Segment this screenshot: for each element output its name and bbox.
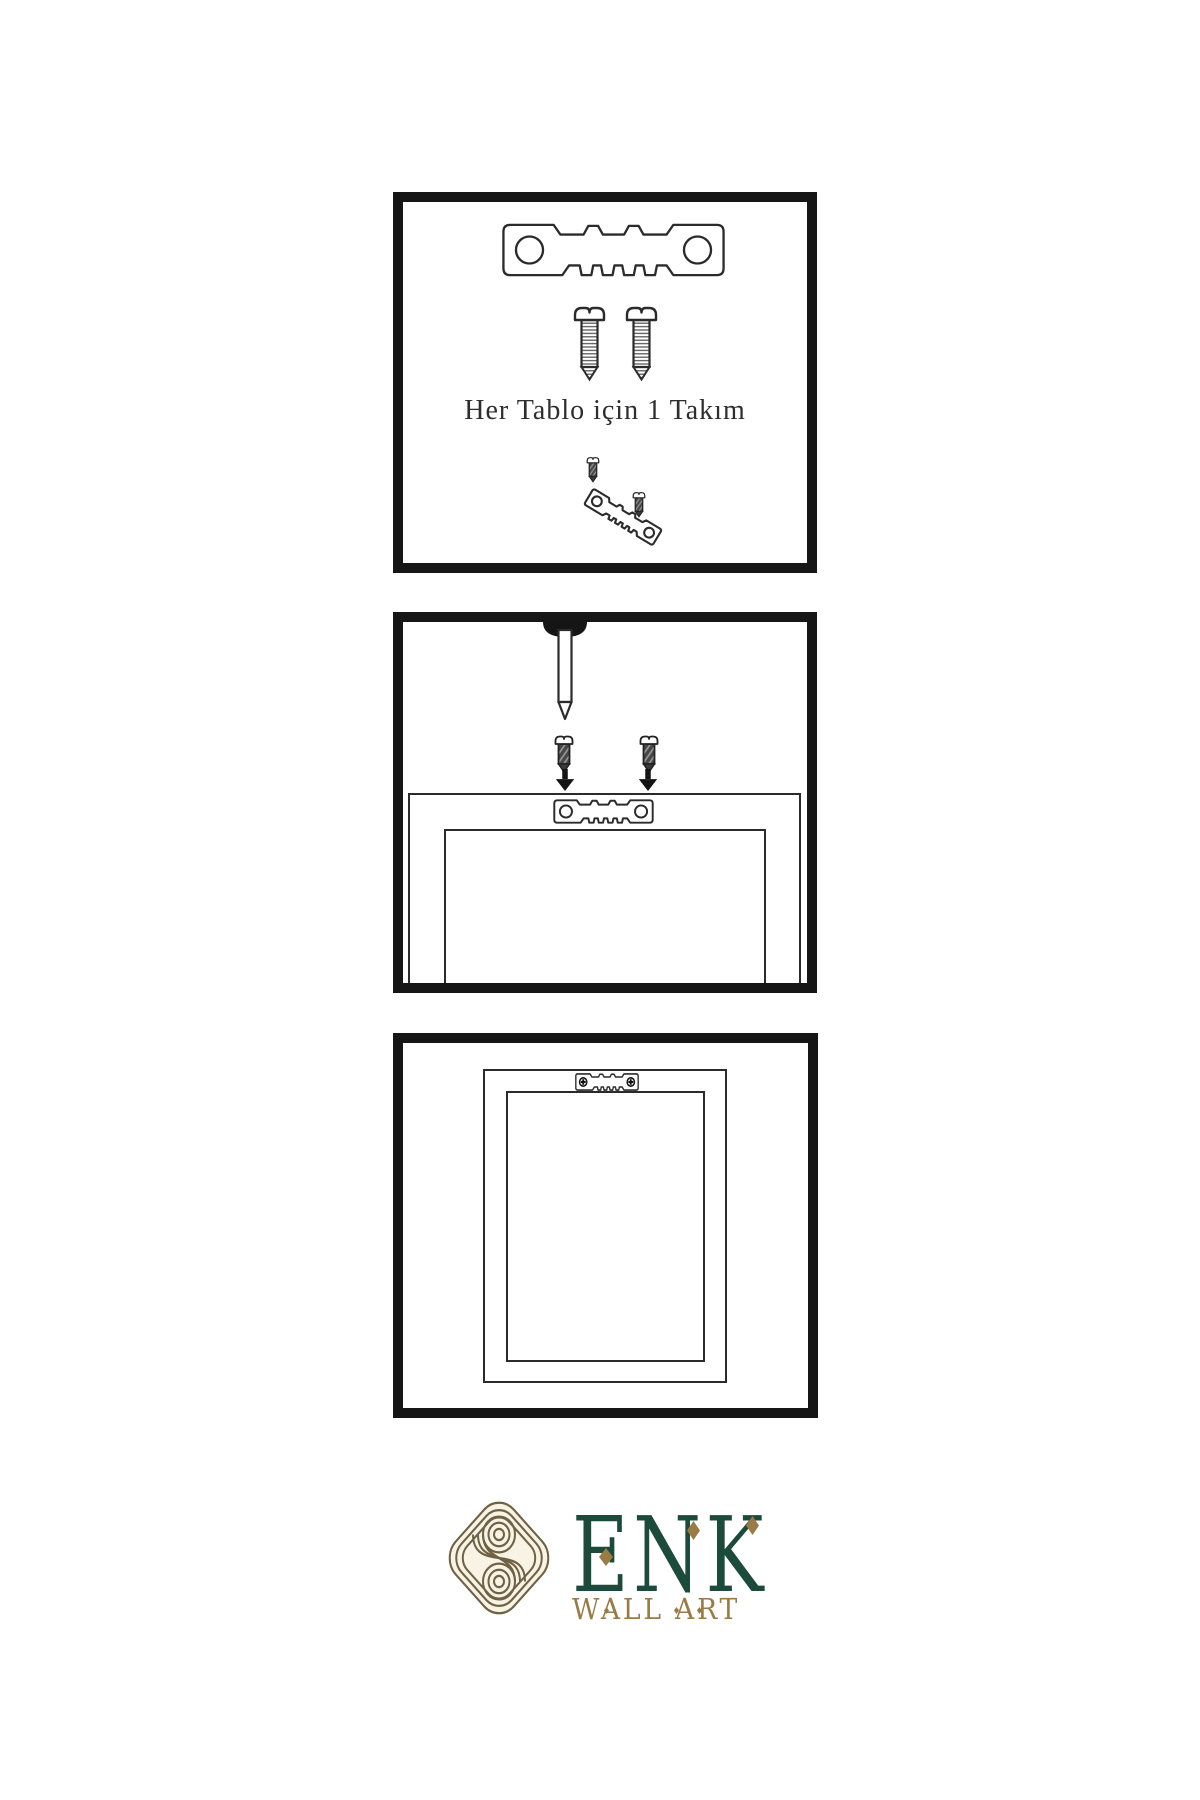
crosshead-screw-icon xyxy=(627,1078,634,1086)
instruction-sheet: Her Tablo için 1 Takım xyxy=(0,0,1200,1800)
kit-caption: Her Tablo için 1 Takım xyxy=(403,395,807,427)
crosshead-screw-icon xyxy=(580,1078,587,1086)
dark-screw-icon xyxy=(553,734,575,774)
arrow-down-icon xyxy=(637,769,659,791)
sawtooth-hanger-installed-icon xyxy=(575,1073,639,1091)
panel-nail-and-screws xyxy=(393,612,817,993)
logo-subtitle: WALL ART xyxy=(570,1594,742,1624)
panel-hung-frame xyxy=(393,1033,818,1418)
screw-icon xyxy=(624,305,659,383)
tilted-hanger-assembly-icon xyxy=(560,440,680,560)
arrow-down-icon xyxy=(554,769,576,791)
dark-screw-icon xyxy=(638,734,660,774)
frame-inner-outline xyxy=(444,829,766,983)
screw-icon xyxy=(572,305,607,383)
sawtooth-hanger-icon xyxy=(497,222,730,278)
sawtooth-hanger-plate-icon xyxy=(553,799,654,824)
frame-inner-outline xyxy=(506,1091,705,1362)
logo-subtitle-text: WALL ART xyxy=(572,1594,740,1624)
nail-icon xyxy=(541,622,589,722)
logo-knot-icon xyxy=(438,1490,560,1626)
panel-hardware-kit: Her Tablo için 1 Takım xyxy=(393,192,817,573)
